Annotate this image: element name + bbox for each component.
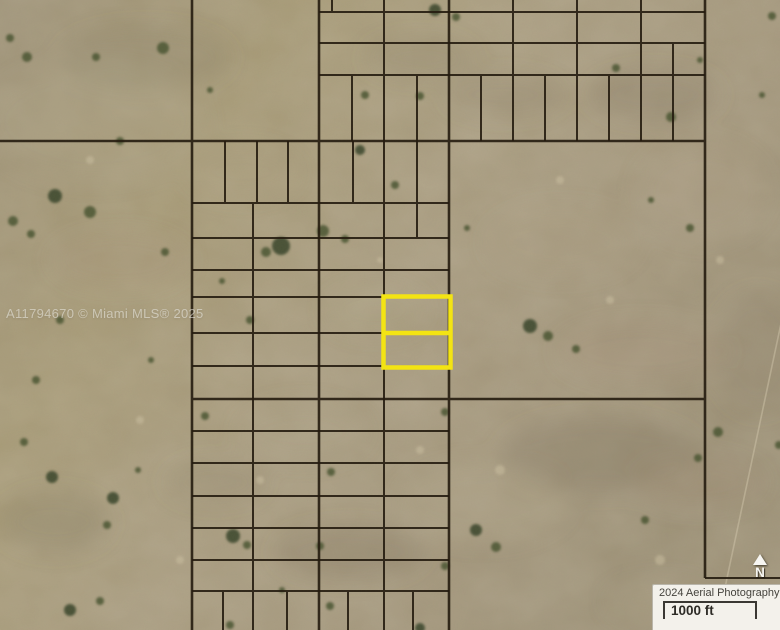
scale-bar: 1000 ft	[663, 601, 757, 619]
north-arrow-icon	[753, 554, 767, 565]
aerial-parcel-map: A11794670 © Miami MLS® 2025 N 2024 Aeria…	[0, 0, 780, 630]
north-indicator: N	[745, 554, 775, 579]
aerial-photography-label: 2024 Aerial Photography	[659, 587, 780, 599]
scale-label: 1000 ft	[665, 603, 755, 619]
map-info-box: 2024 Aerial Photography 1000 ft	[652, 584, 780, 630]
north-label: N	[745, 566, 775, 579]
mls-watermark: A11794670 © Miami MLS® 2025	[6, 306, 204, 321]
